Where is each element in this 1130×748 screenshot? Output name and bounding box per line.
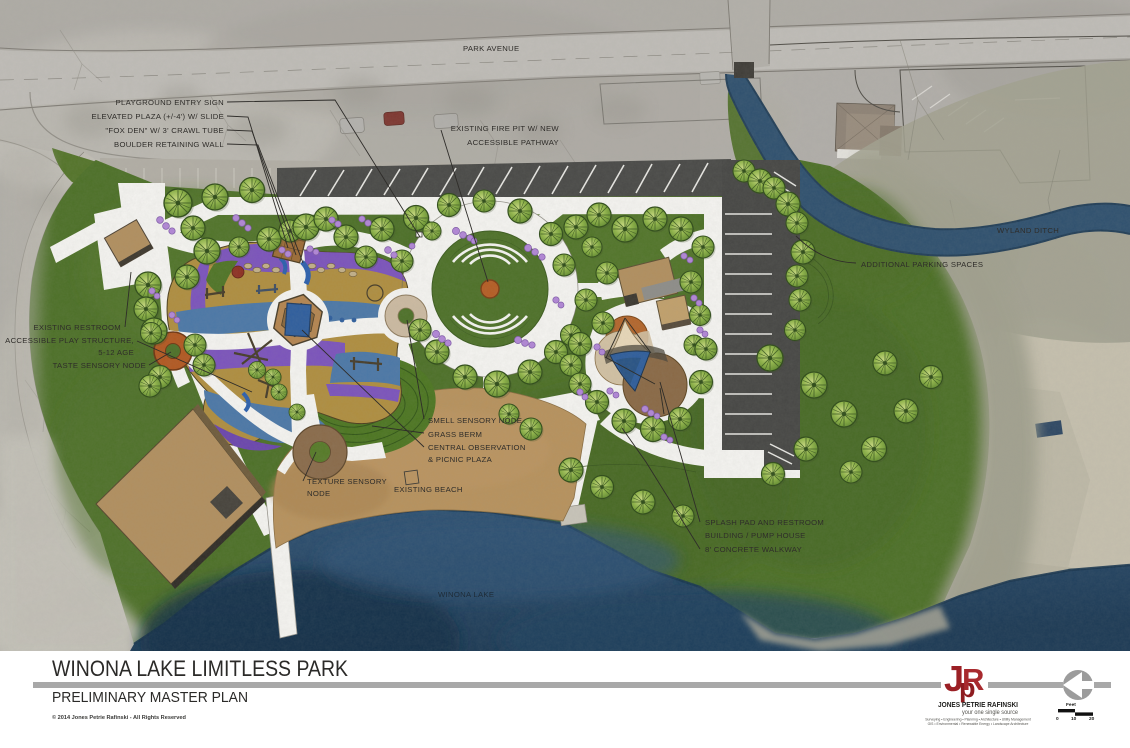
svg-text:PRELIMINARY MASTER PLAN: PRELIMINARY MASTER PLAN — [52, 690, 248, 706]
svg-text:"FOX DEN" W/ 3' CRAWL TUBE: "FOX DEN" W/ 3' CRAWL TUBE — [105, 126, 224, 135]
svg-text:ACCESSIBLE PLAY STRUCTURE,: ACCESSIBLE PLAY STRUCTURE, — [5, 336, 134, 345]
svg-text:Feet: Feet — [1066, 702, 1076, 708]
svg-text:& PICNIC PLAZA: & PICNIC PLAZA — [428, 455, 493, 464]
svg-text:NODE: NODE — [307, 489, 330, 498]
svg-text:20: 20 — [1089, 716, 1095, 722]
svg-text:WYLAND DITCH: WYLAND DITCH — [997, 226, 1059, 235]
svg-text:TEXTURE SENSORY: TEXTURE SENSORY — [307, 477, 387, 486]
svg-text:your one single source: your one single source — [962, 710, 1019, 716]
svg-text:10: 10 — [1071, 716, 1077, 722]
svg-text:SMELL SENSORY NODE: SMELL SENSORY NODE — [428, 416, 522, 425]
svg-text:EXISTING BEACH: EXISTING BEACH — [394, 485, 463, 494]
svg-text:JONES PETRIE RAFINSKI: JONES PETRIE RAFINSKI — [938, 700, 1018, 709]
svg-text:GRASS BERM: GRASS BERM — [428, 430, 482, 439]
svg-text:CENTRAL OBSERVATION: CENTRAL OBSERVATION — [428, 443, 526, 452]
svg-text:TASTE SENSORY NODE: TASTE SENSORY NODE — [53, 361, 146, 370]
svg-text:BUILDING / PUMP HOUSE: BUILDING / PUMP HOUSE — [705, 531, 806, 540]
svg-text:0: 0 — [1056, 716, 1059, 722]
svg-text:WINONA LAKE: WINONA LAKE — [438, 590, 494, 599]
svg-text:ELEVATED PLAZA (+/-4') W/ SLID: ELEVATED PLAZA (+/-4') W/ SLIDE — [92, 112, 224, 121]
svg-text:GIS • Environmental • Renewabl: GIS • Environmental • Renewable Energy •… — [928, 722, 1029, 726]
svg-text:PARK AVENUE: PARK AVENUE — [463, 44, 519, 53]
svg-text:SPLASH PAD AND RESTROOM: SPLASH PAD AND RESTROOM — [705, 518, 824, 527]
svg-text:5-12 AGE: 5-12 AGE — [98, 348, 134, 357]
svg-text:8' CONCRETE WALKWAY: 8' CONCRETE WALKWAY — [705, 545, 802, 554]
svg-text:PLAYGROUND ENTRY SIGN: PLAYGROUND ENTRY SIGN — [116, 98, 224, 107]
svg-text:ACCESSIBLE PATHWAY: ACCESSIBLE PATHWAY — [467, 138, 559, 147]
svg-text:© 2014 Jones Petrie Rafinski -: © 2014 Jones Petrie Rafinski - All Right… — [52, 714, 186, 721]
svg-text:BOULDER RETAINING WALL: BOULDER RETAINING WALL — [114, 140, 224, 149]
svg-text:ADDITIONAL PARKING SPACES: ADDITIONAL PARKING SPACES — [861, 260, 983, 269]
svg-text:WINONA LAKE LIMITLESS PARK: WINONA LAKE LIMITLESS PARK — [52, 656, 348, 681]
svg-text:EXISTING RESTROOM: EXISTING RESTROOM — [33, 323, 121, 332]
svg-text:EXISTING FIRE PIT W/ NEW: EXISTING FIRE PIT W/ NEW — [451, 124, 560, 133]
svg-text:R: R — [962, 662, 984, 697]
svg-text:Surveying • Engineering • Plan: Surveying • Engineering • Planning • Arc… — [925, 718, 1031, 722]
